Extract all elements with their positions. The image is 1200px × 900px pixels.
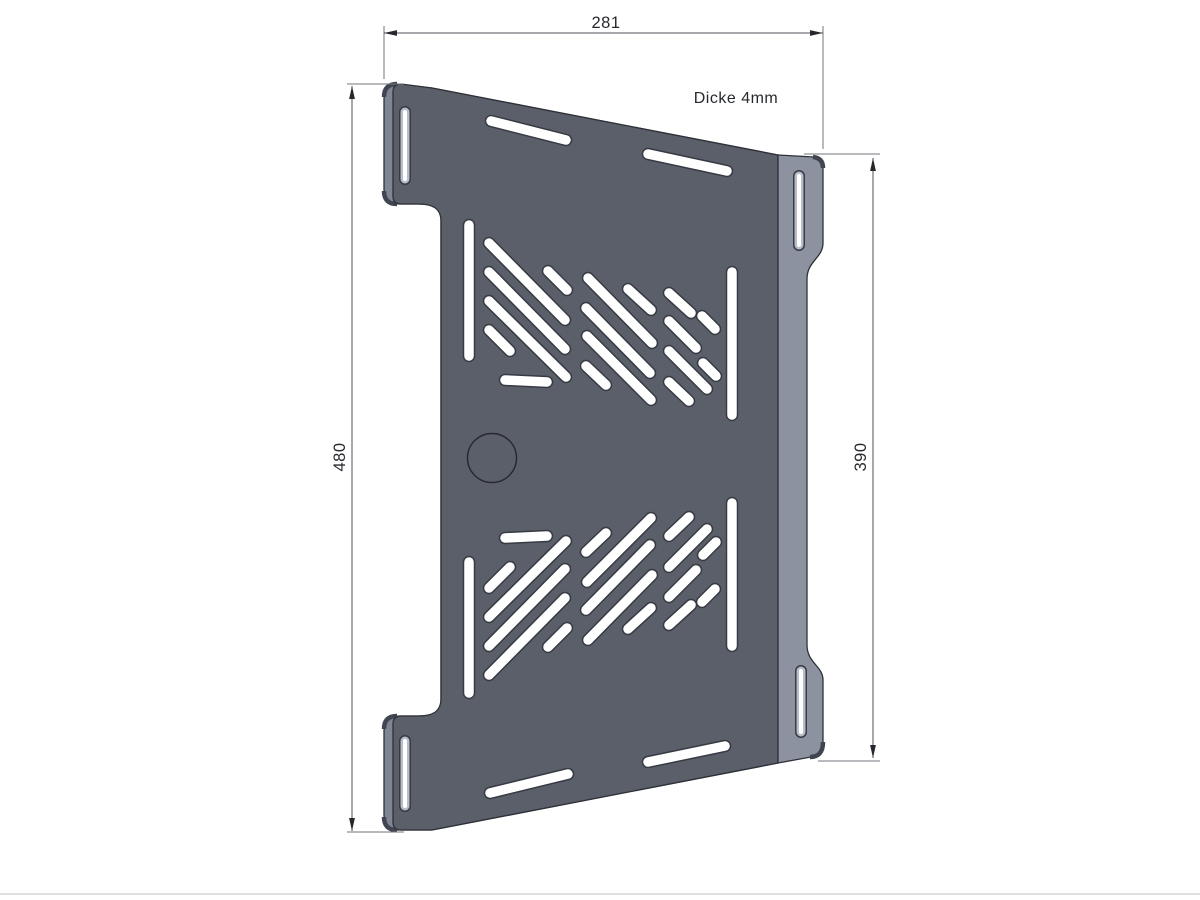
dim-right-height-label: 390 [852,442,870,471]
plate-face [393,84,778,830]
dim-arrow-left [349,86,355,99]
dim-arrow-left [349,818,355,831]
dim-arrow-top [384,30,397,36]
dim-arrow-right [870,745,876,758]
dim-arrow-right [870,158,876,171]
vent-slot [505,380,547,382]
dim-arrow-top [810,30,823,36]
technical-drawing: 281 480 390 Dicke 4mm [0,0,1200,900]
thickness-note: Dicke 4mm [694,90,779,107]
plate [384,84,823,830]
dim-left-height-label: 480 [331,442,349,471]
drawing-page: 281 480 390 Dicke 4mm [0,0,1200,900]
dim-width-label: 281 [591,14,620,32]
vent-slot [505,536,547,538]
